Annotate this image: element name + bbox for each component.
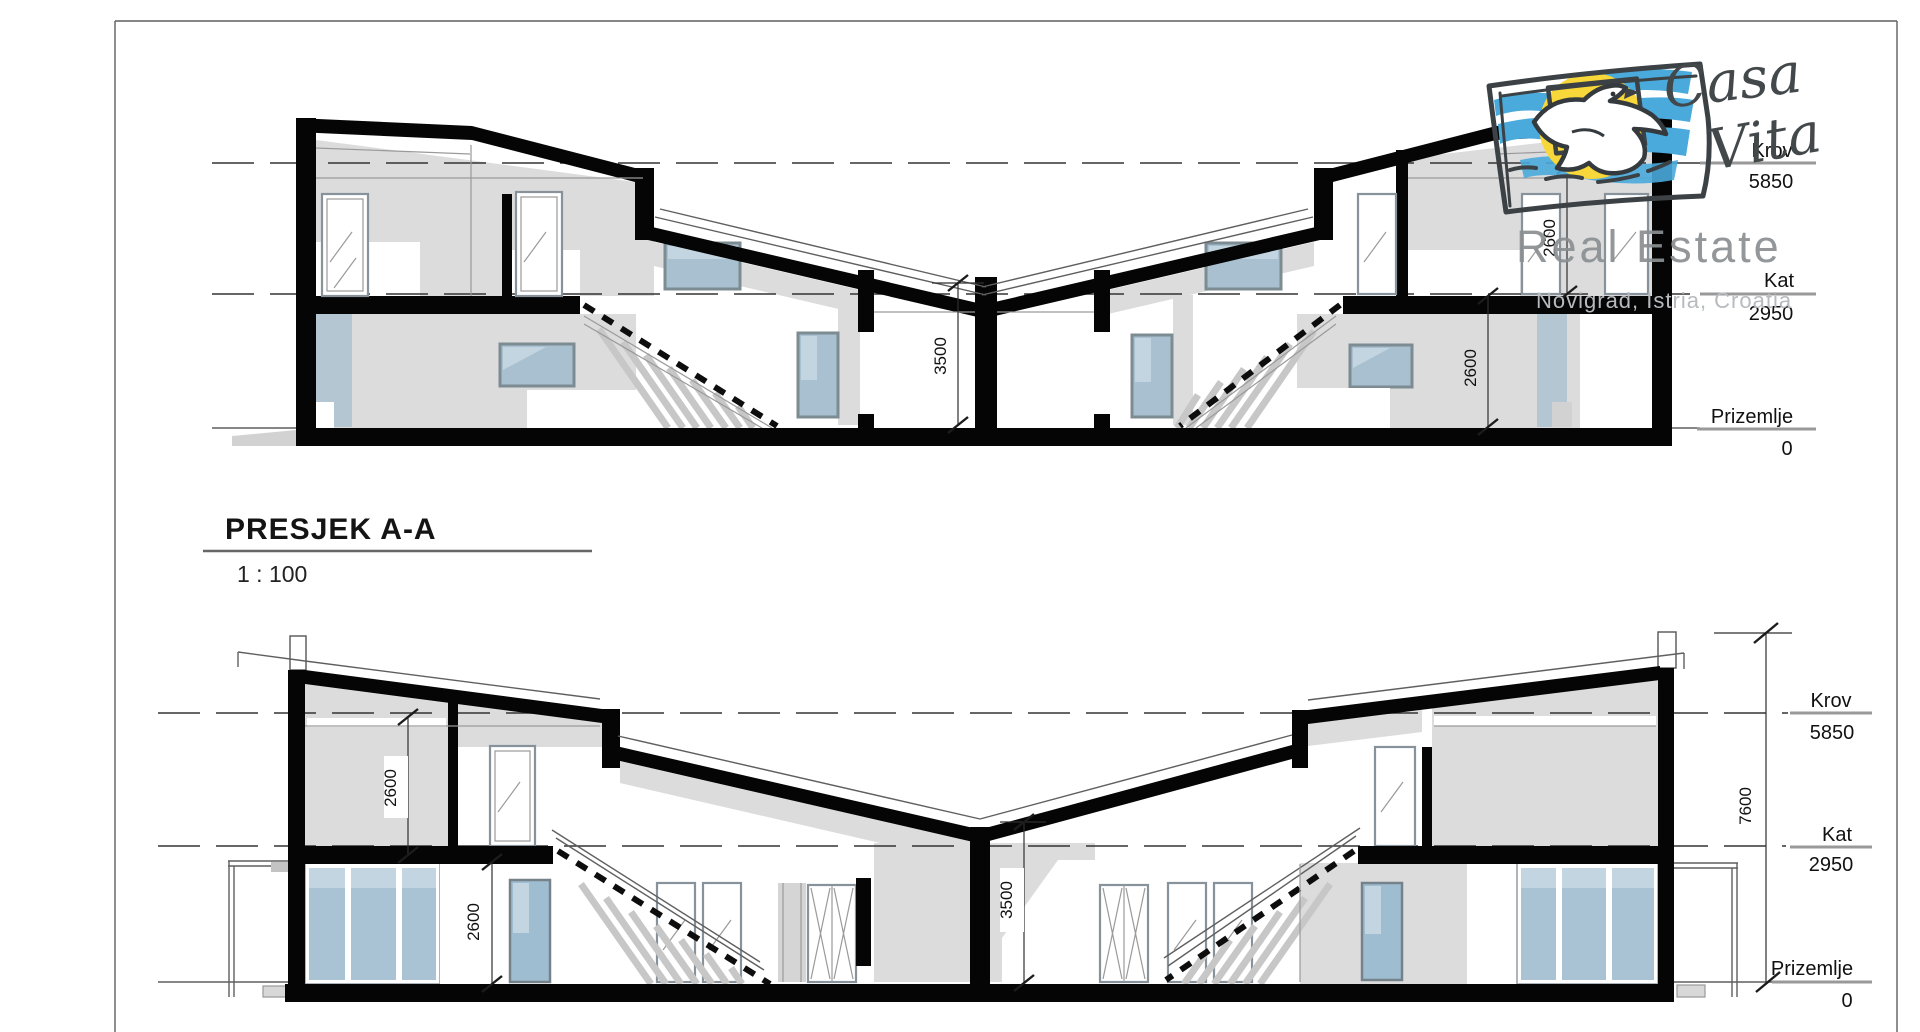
bottom-section-drawing: 2600 2600 3500 7600 Krov 5850 Kat — [158, 623, 1872, 1012]
level-value-prizemlje-top: 0 — [1781, 438, 1792, 460]
glass-wall — [305, 863, 440, 984]
drawing-scale: 1 : 100 — [237, 561, 307, 587]
dim-text-2600-upper-bottom: 2600 — [381, 769, 400, 807]
level-value-kat-bottom: 2950 — [1809, 854, 1854, 876]
dimension-total-height: 7600 — [1714, 623, 1792, 982]
level-label-prizemlje-bottom: Prizemlje — [1771, 958, 1853, 980]
dim-text-7600: 7600 — [1736, 787, 1755, 825]
brand-subtitle: Real Estate — [1516, 221, 1782, 272]
brand-location: Novigrad, Istria, Croatia — [1536, 288, 1792, 313]
dim-text-3500-top: 3500 — [931, 337, 950, 375]
glass-entry-door — [1362, 883, 1402, 980]
level-labels-bottom: Krov 5850 Kat 2950 Prizemlje 0 — [1771, 690, 1854, 1012]
drawing-title: PRESJEK A-A — [225, 513, 437, 546]
level-value-prizemlje-bottom: 0 — [1841, 990, 1852, 1012]
level-value-krov-bottom: 5850 — [1810, 722, 1855, 744]
glass-entry-door — [510, 880, 550, 982]
terrace-pergola — [1674, 863, 1738, 997]
level-label-kat-bottom: Kat — [1822, 824, 1852, 846]
dimension-ground-room-bottom: 2600 — [464, 854, 502, 992]
section-drawing-sheet: 3500 2600 2600 Krov 5850 Kat 2950 Prizem… — [0, 0, 1920, 1032]
eave-tip — [1658, 632, 1676, 668]
glass-wall — [1517, 863, 1658, 984]
dim-text-2600-ground-bottom: 2600 — [464, 903, 483, 941]
dim-text-3500-bottom: 3500 — [997, 881, 1016, 919]
level-label-prizemlje-top: Prizemlje — [1711, 406, 1793, 428]
terrace-pergola — [228, 861, 291, 997]
eave-tip — [290, 636, 306, 670]
dim-text-2600-top: 2600 — [1461, 349, 1480, 387]
drawing-sheet: 3500 2600 2600 Krov 5850 Kat 2950 Prizem… — [0, 0, 1920, 1032]
title-block: PRESJEK A-A 1 : 100 — [203, 513, 592, 587]
level-label-krov-bottom: Krov — [1810, 690, 1851, 712]
